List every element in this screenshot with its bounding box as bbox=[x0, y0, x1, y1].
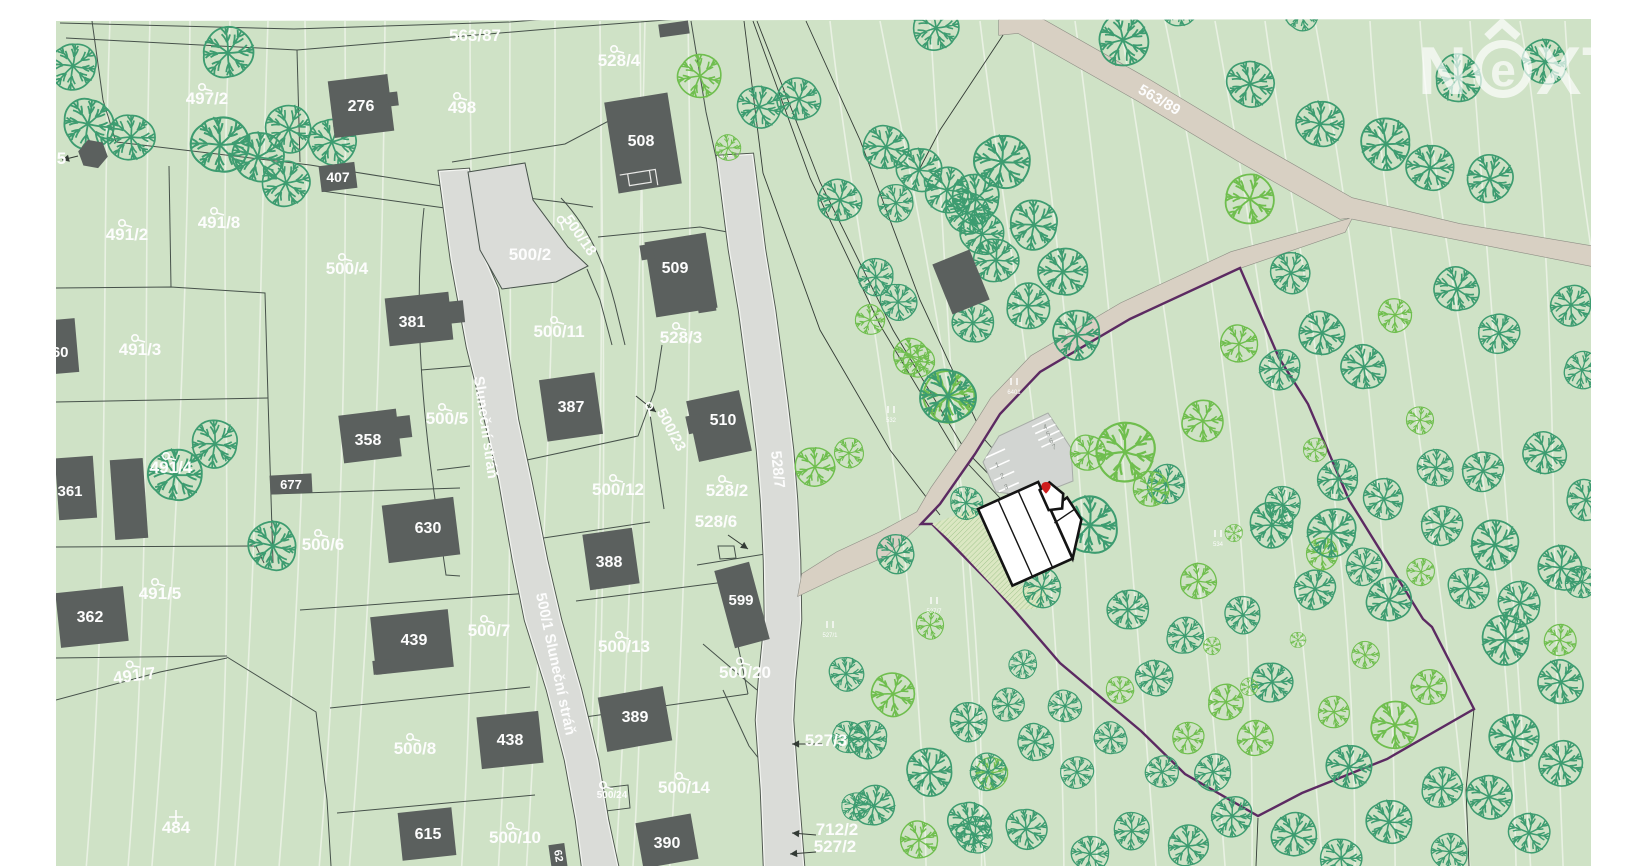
svg-text:361: 361 bbox=[57, 483, 82, 500]
svg-text:497/2: 497/2 bbox=[186, 89, 229, 108]
svg-text:498: 498 bbox=[448, 98, 476, 117]
svg-text:500/10: 500/10 bbox=[489, 828, 541, 847]
svg-text:500/8: 500/8 bbox=[394, 739, 437, 758]
svg-text:500/7: 500/7 bbox=[468, 621, 511, 640]
svg-text:491/4: 491/4 bbox=[150, 458, 193, 477]
svg-text:500/4: 500/4 bbox=[326, 259, 369, 278]
svg-text:389: 389 bbox=[622, 709, 649, 726]
svg-text:527/2: 527/2 bbox=[814, 837, 857, 856]
svg-text:500/6: 500/6 bbox=[302, 535, 345, 554]
svg-text:358: 358 bbox=[355, 432, 382, 449]
svg-text:528/6: 528/6 bbox=[695, 512, 738, 531]
svg-text:388: 388 bbox=[596, 554, 623, 571]
svg-text:439: 439 bbox=[401, 632, 428, 649]
svg-text:387: 387 bbox=[558, 399, 585, 416]
svg-text:491/3: 491/3 bbox=[119, 340, 162, 359]
svg-text:276: 276 bbox=[348, 98, 375, 115]
svg-text:534: 534 bbox=[1213, 542, 1224, 548]
svg-text:528/4: 528/4 bbox=[598, 51, 641, 70]
svg-text:500/2: 500/2 bbox=[509, 245, 552, 264]
svg-text:500/11: 500/11 bbox=[533, 322, 584, 341]
svg-text:500/20: 500/20 bbox=[719, 663, 771, 682]
svg-text:N: N bbox=[1418, 33, 1467, 109]
svg-text:532: 532 bbox=[886, 418, 897, 424]
svg-text:491/2: 491/2 bbox=[106, 225, 149, 244]
svg-text:500/5: 500/5 bbox=[426, 409, 469, 428]
svg-text:381: 381 bbox=[399, 314, 426, 331]
svg-text:407: 407 bbox=[326, 169, 350, 185]
svg-text:500/24: 500/24 bbox=[597, 790, 628, 801]
svg-text:491/8: 491/8 bbox=[198, 213, 241, 232]
svg-text:62: 62 bbox=[551, 849, 565, 863]
svg-text:527/1: 527/1 bbox=[822, 633, 838, 639]
svg-text:630: 630 bbox=[415, 520, 442, 537]
svg-text:500/12: 500/12 bbox=[592, 480, 644, 499]
svg-text:677: 677 bbox=[280, 477, 302, 492]
svg-text:615: 615 bbox=[415, 826, 442, 843]
svg-text:500/14: 500/14 bbox=[658, 778, 711, 797]
svg-text:527/3: 527/3 bbox=[805, 731, 848, 750]
svg-text:X: X bbox=[1536, 33, 1581, 109]
svg-text:491/5: 491/5 bbox=[139, 584, 182, 603]
svg-text:563/87: 563/87 bbox=[449, 26, 501, 45]
svg-text:e: e bbox=[1490, 44, 1516, 96]
svg-text:528/3: 528/3 bbox=[660, 328, 703, 347]
svg-text:599: 599 bbox=[728, 592, 753, 609]
svg-text:438: 438 bbox=[497, 732, 524, 749]
svg-text:362: 362 bbox=[77, 609, 104, 626]
svg-text:509: 509 bbox=[662, 260, 689, 277]
svg-text:390: 390 bbox=[654, 835, 681, 852]
svg-text:6401: 6401 bbox=[1007, 390, 1021, 396]
svg-text:528/2: 528/2 bbox=[706, 481, 749, 500]
svg-text:510: 510 bbox=[710, 412, 737, 429]
svg-text:508: 508 bbox=[628, 133, 655, 150]
svg-text:500/13: 500/13 bbox=[598, 637, 650, 656]
svg-text:527/7: 527/7 bbox=[926, 609, 942, 615]
